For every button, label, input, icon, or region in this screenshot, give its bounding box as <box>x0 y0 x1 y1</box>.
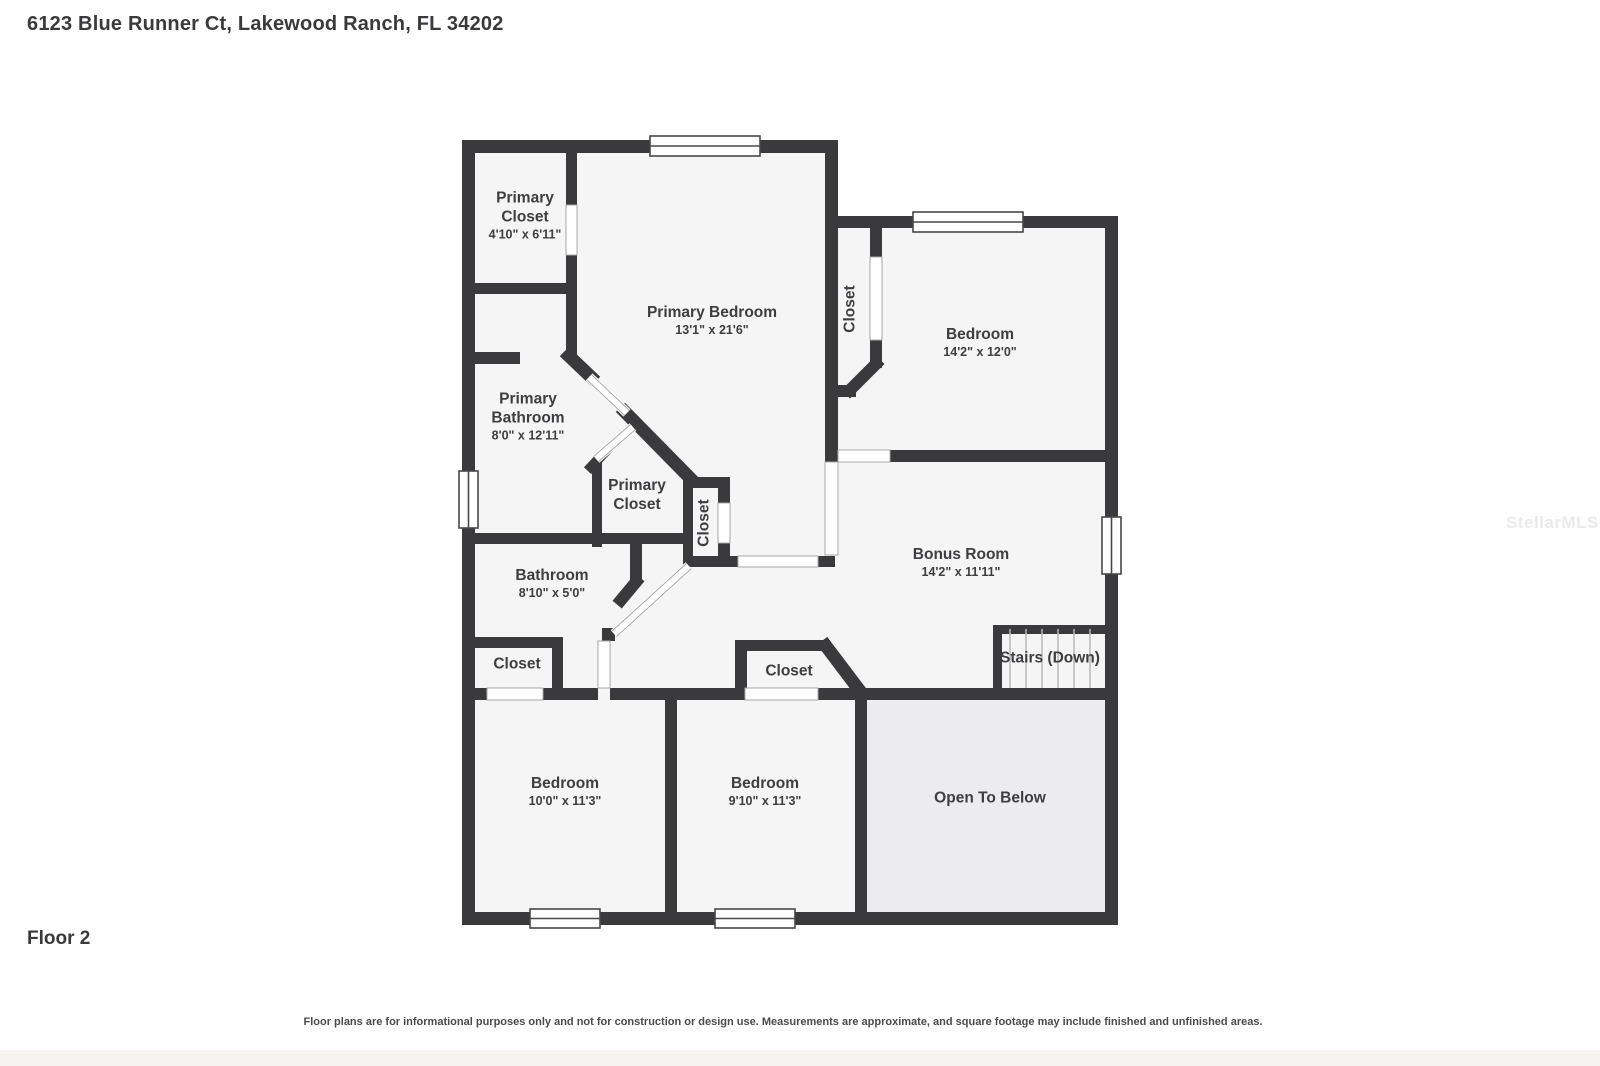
door-opening <box>738 556 818 567</box>
room-name: Stairs (Down) <box>1000 649 1100 668</box>
room-dims: 4'10" x 6'11" <box>479 227 571 244</box>
room-dims: 8'0" x 12'11" <box>482 428 574 445</box>
room-name: Bedroom <box>529 774 602 793</box>
room-label-bathroom: Bathroom 8'10" x 5'0" <box>515 566 588 602</box>
room-label-primary-closet-middle: Primary Closet <box>591 476 683 514</box>
room-dims: 8'10" x 5'0" <box>515 585 588 602</box>
room-name: Bonus Room <box>913 545 1009 564</box>
room-dims: 10'0" x 11'3" <box>529 793 602 810</box>
window <box>459 471 478 528</box>
window <box>530 909 600 928</box>
window <box>1102 517 1121 574</box>
floor-plan-drawing <box>0 0 1600 1066</box>
room-name: Primary Closet <box>591 476 683 514</box>
room-label-open-to-below: Open To Below <box>934 789 1046 808</box>
door-opening <box>870 257 882 340</box>
door-opening <box>718 503 730 543</box>
room-name: Closet <box>765 662 812 681</box>
door-opening <box>487 688 543 700</box>
room-label-primary-closet-upper: Primary Closet 4'10" x 6'11" <box>479 189 571 244</box>
door-opening <box>838 450 890 462</box>
room-name: Primary Bedroom <box>647 303 777 322</box>
room-dims: 14'2" x 11'11" <box>913 564 1009 581</box>
window <box>913 212 1023 232</box>
room-name: Closet <box>493 655 540 674</box>
room-label-bedroom-top-right: Bedroom 14'2" x 12'0" <box>943 325 1016 361</box>
floor-plan-page: 6123 Blue Runner Ct, Lakewood Ranch, FL … <box>0 0 1600 1066</box>
door-leaf <box>598 641 610 688</box>
disclaimer-text: Floor plans are for informational purpos… <box>303 1016 1262 1028</box>
room-label-primary-bathroom: Primary Bathroom 8'0" x 12'11" <box>482 390 574 445</box>
stellar-mls-watermark: StellarMLS <box>1506 513 1599 533</box>
room-label-closet-top-right: Closet <box>841 285 860 332</box>
room-label-closet-bottom-center: Closet <box>765 662 812 681</box>
room-label-stairs-down: Stairs (Down) <box>1000 649 1100 668</box>
room-name: Open To Below <box>934 789 1046 808</box>
room-name: Closet <box>695 499 714 546</box>
floor-label: Floor 2 <box>27 928 90 950</box>
room-label-closet-bottom-left: Closet <box>493 655 540 674</box>
room-label-bonus-room: Bonus Room 14'2" x 11'11" <box>913 545 1009 581</box>
room-dims: 13'1" x 21'6" <box>647 322 777 339</box>
door-leaf <box>825 462 838 555</box>
room-name: Bedroom <box>943 325 1016 344</box>
room-name: Closet <box>841 285 860 332</box>
window <box>715 909 795 928</box>
bottom-strip <box>0 1050 1600 1066</box>
room-name: Bedroom <box>729 774 802 793</box>
room-name: Primary Bathroom <box>482 390 574 428</box>
room-dims: 9'10" x 11'3" <box>729 793 802 810</box>
room-dims: 14'2" x 12'0" <box>943 344 1016 361</box>
door-opening <box>745 688 818 700</box>
room-label-primary-bedroom: Primary Bedroom 13'1" x 21'6" <box>647 303 777 339</box>
room-label-bedroom-bottom-left: Bedroom 10'0" x 11'3" <box>529 774 602 810</box>
room-label-bedroom-bottom-center: Bedroom 9'10" x 11'3" <box>729 774 802 810</box>
room-name: Primary Closet <box>479 189 571 227</box>
window <box>650 136 760 156</box>
room-label-closet-nook: Closet <box>695 499 714 546</box>
room-name: Bathroom <box>515 566 588 585</box>
